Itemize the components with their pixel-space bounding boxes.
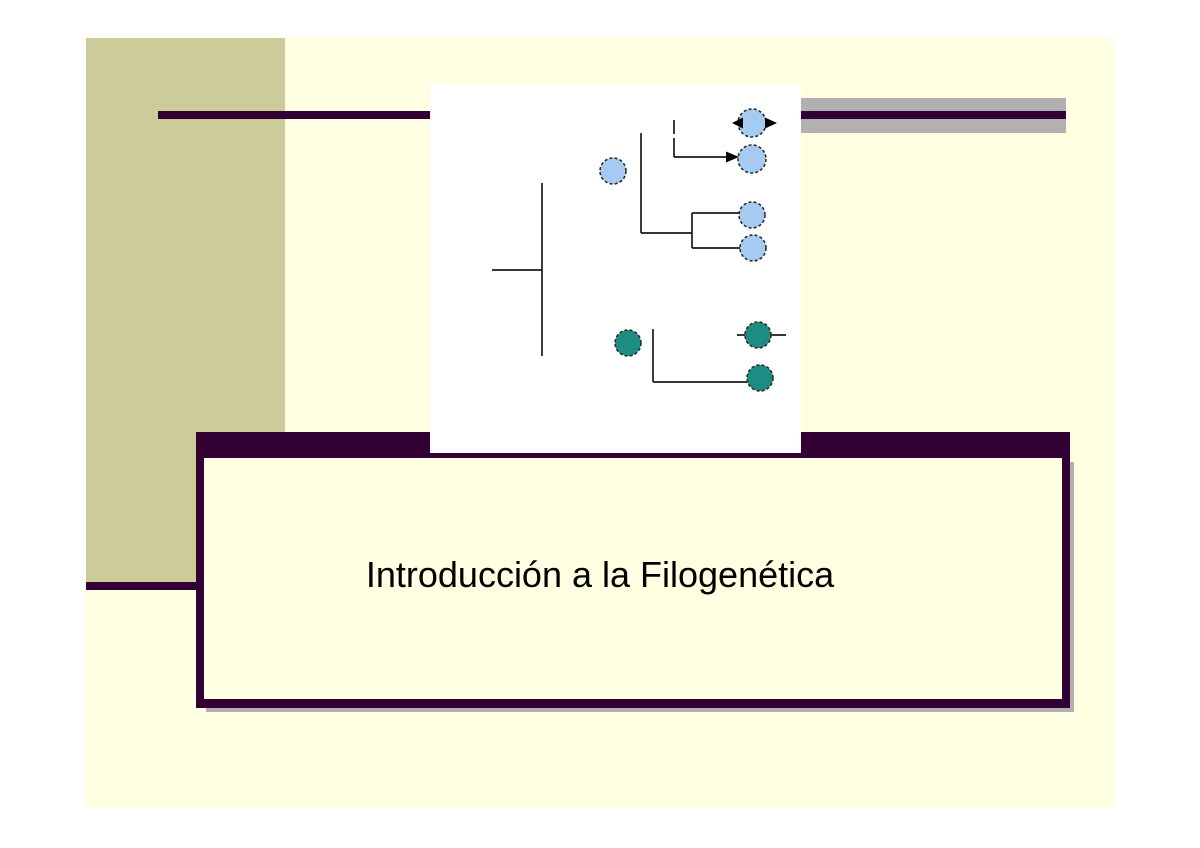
- arrowhead-right-icon: [726, 152, 739, 163]
- tree-node-blue-fourth: [740, 235, 766, 261]
- phylogenetic-tree-panel: [430, 84, 801, 453]
- tree-node-blue-second: [738, 145, 766, 173]
- tree-node-teal-top: [745, 322, 771, 348]
- title-frame-shadow: [1070, 462, 1074, 712]
- tree-node-teal-bottom: [747, 365, 773, 391]
- slide-canvas: { "slide": { "title": "Introducción a la…: [0, 0, 1200, 848]
- tree-node-blue-third: [739, 202, 765, 228]
- left-band-underline: [86, 582, 207, 590]
- tree-node-blue-root: [600, 158, 626, 184]
- arrowhead-left-icon: [732, 118, 743, 129]
- phylogenetic-tree-diagram: [430, 84, 801, 453]
- title-box: Introducción a la Filogenética: [196, 453, 1070, 708]
- title-frame-shadow: [206, 708, 1074, 712]
- arrowhead-right-icon: [765, 118, 777, 129]
- slide-title: Introducción a la Filogenética: [366, 554, 834, 596]
- tree-node-teal-root: [615, 330, 641, 356]
